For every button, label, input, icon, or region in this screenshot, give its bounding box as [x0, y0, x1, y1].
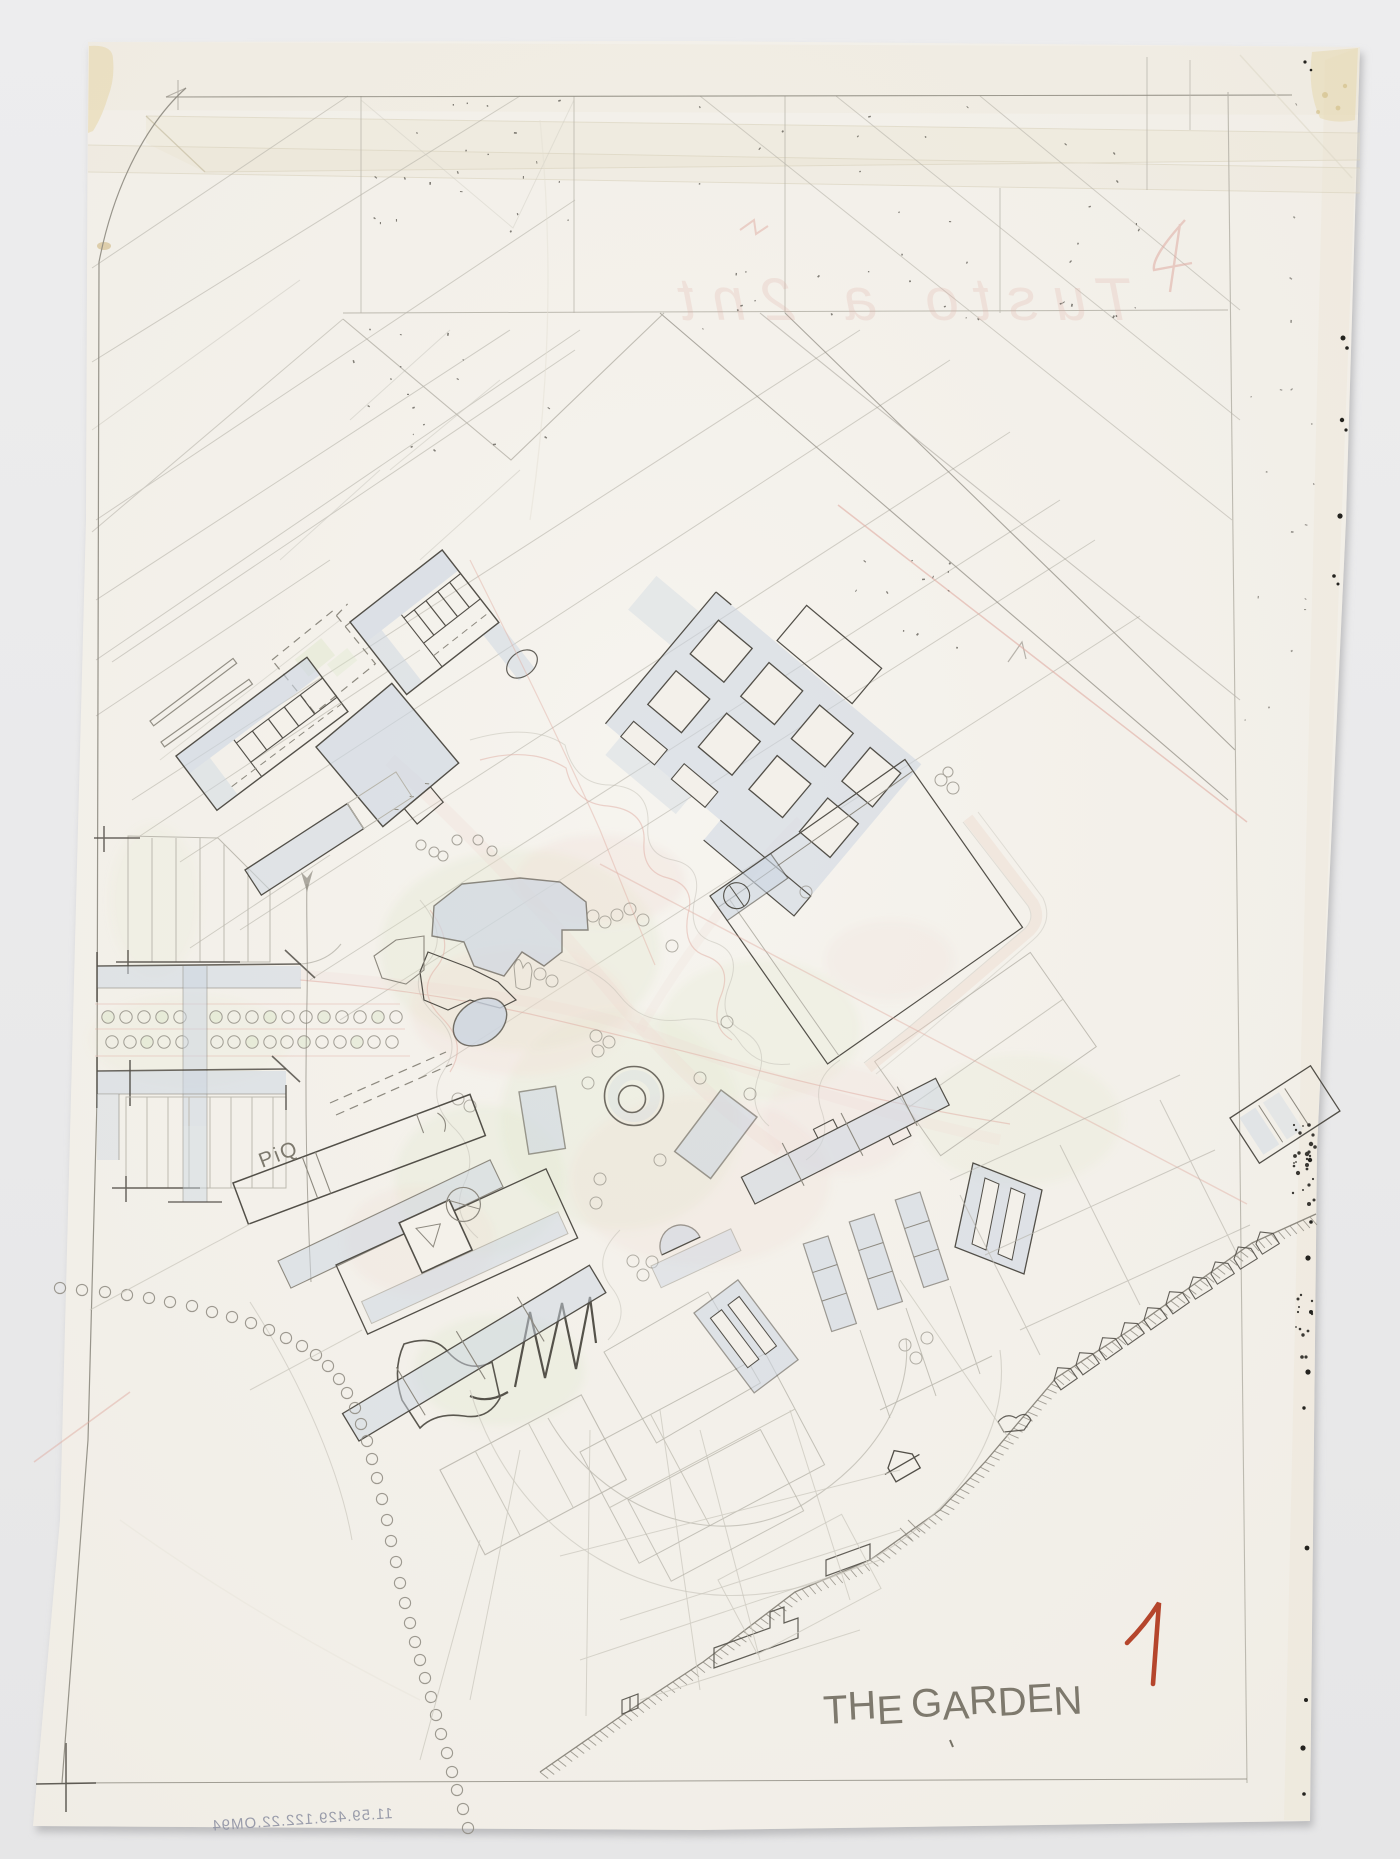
svg-text:Tusto a 2nt: Tusto a 2nt [663, 266, 1135, 333]
